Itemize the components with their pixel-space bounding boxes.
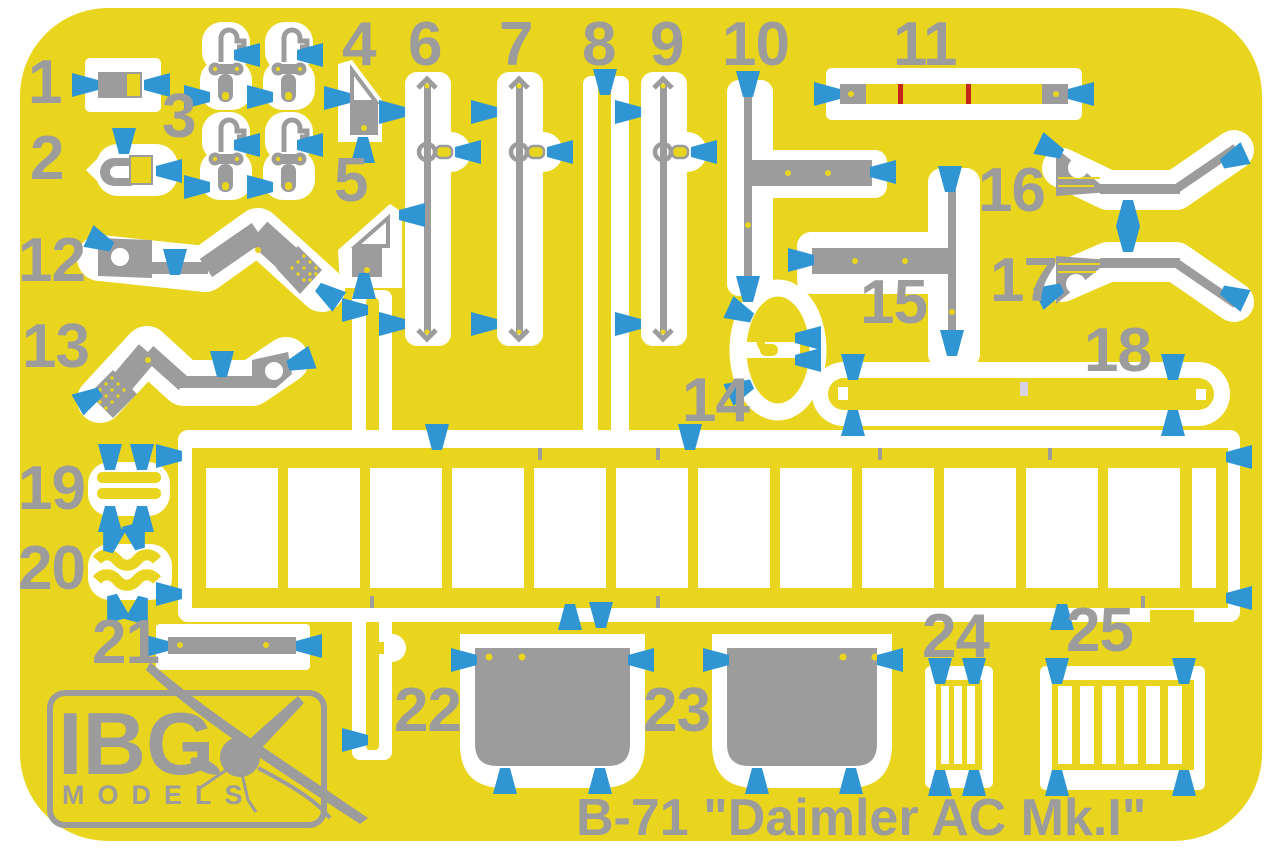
part-number-23: 23: [643, 680, 710, 742]
part-number-7: 7: [499, 14, 532, 76]
part-number-25: 25: [1066, 600, 1133, 662]
part-number-18: 18: [1084, 320, 1151, 382]
part-number-22: 22: [394, 680, 461, 742]
part-number-4: 4: [342, 14, 375, 76]
part-number-6: 6: [408, 14, 441, 76]
part-19-graphic: [88, 462, 170, 516]
part-number-10: 10: [722, 14, 789, 76]
strip-8-graphic: [583, 76, 629, 438]
brand-name: IBG: [58, 700, 214, 788]
part-number-21: 21: [92, 612, 159, 674]
part-21-graphic: [156, 624, 310, 670]
part-number-1: 1: [28, 52, 61, 114]
part-number-8: 8: [582, 14, 615, 76]
part-number-15: 15: [860, 272, 927, 334]
part-number-9: 9: [650, 14, 683, 76]
brand-subtitle: MODELS: [62, 782, 256, 809]
part-number-12: 12: [18, 230, 85, 292]
part-number-16: 16: [978, 160, 1045, 222]
part-number-24: 24: [922, 606, 989, 668]
part-number-17: 17: [990, 250, 1057, 312]
part-24-graphic: [925, 666, 993, 788]
part-22-graphic: [460, 634, 645, 788]
part-number-11: 11: [893, 14, 957, 76]
part-number-3: 3: [162, 86, 195, 148]
part-number-5: 5: [334, 150, 367, 212]
part-23-graphic: [712, 634, 892, 788]
part-number-20: 20: [18, 538, 85, 600]
part-number-13: 13: [22, 316, 89, 378]
part-number-2: 2: [30, 128, 63, 190]
part-number-14: 14: [682, 370, 749, 432]
sheet-title: B-71 "Daimler AC Mk.I": [576, 792, 1146, 844]
photo-etch-sheet-scan: 1 2 3 4 5 6 7 8 9 10 11 12 13 14 15 16 1…: [0, 0, 1280, 849]
frame-part-graphic: [178, 430, 1240, 622]
part-number-19: 19: [18, 458, 85, 520]
